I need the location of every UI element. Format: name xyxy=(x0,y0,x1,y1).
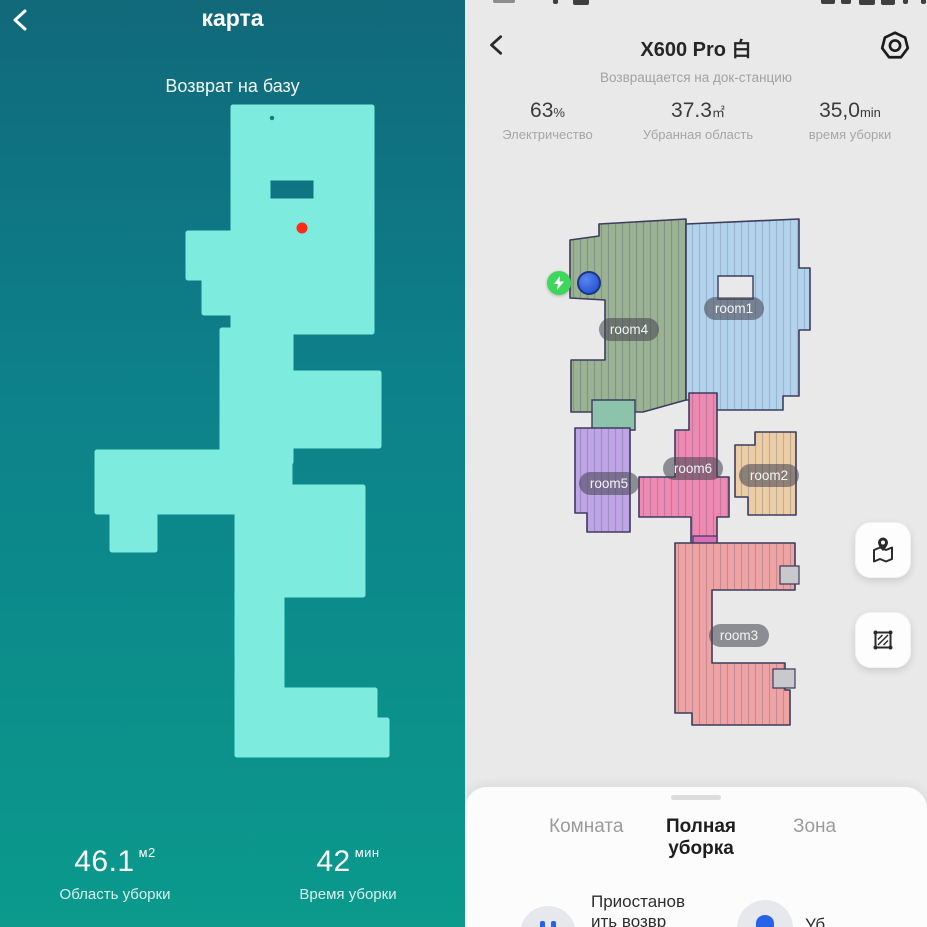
dock-action-button[interactable] xyxy=(737,900,793,927)
room-label-room3[interactable]: room3 xyxy=(709,624,769,647)
robot-marker xyxy=(577,271,601,295)
dock-icon xyxy=(752,912,778,927)
pause-icon xyxy=(540,921,545,927)
right-panel: X600 Pro 白 Возвращается на док-станцию 6… xyxy=(465,0,927,927)
zone-edit-button[interactable] xyxy=(855,612,911,668)
left-panel: карта Возврат на базу 46.1м2 Область убо… xyxy=(0,0,465,927)
charging-dock-marker xyxy=(547,271,571,295)
page-title: карта xyxy=(0,5,465,32)
left-header: карта xyxy=(0,0,465,44)
room-label-room5[interactable]: room5 xyxy=(579,472,639,495)
green-patch xyxy=(592,400,635,430)
dock-action-label: Уб xyxy=(805,915,825,927)
pause-return-button[interactable] xyxy=(520,906,576,927)
room-label-room4[interactable]: room4 xyxy=(599,318,659,341)
left-status-text: Возврат на базу xyxy=(0,76,465,97)
zone-icon xyxy=(869,626,897,654)
cleaning-map xyxy=(0,0,465,927)
room-label-room1[interactable]: room1 xyxy=(704,297,764,320)
stat-label: Область уборки xyxy=(25,886,205,903)
tab-zone[interactable]: Зона xyxy=(793,816,836,838)
room1-obstacle xyxy=(718,276,753,299)
tab-full-clean[interactable]: Полная уборка xyxy=(661,816,741,861)
pause-icon xyxy=(551,921,556,927)
stat-value: 42 xyxy=(316,845,350,878)
stat-unit: м2 xyxy=(139,845,156,860)
map-pin-icon xyxy=(869,536,897,564)
pause-return-label: Приостанов ить возвр xyxy=(591,892,693,927)
screen: карта Возврат на базу 46.1м2 Область убо… xyxy=(0,0,927,927)
robot-position-dot xyxy=(297,223,308,234)
map-speck xyxy=(270,116,274,120)
stat-clean-time: 42мин Время уборки xyxy=(258,845,438,903)
tab-room[interactable]: Комната xyxy=(549,816,623,838)
sheet-drag-handle[interactable] xyxy=(671,795,721,800)
bottom-sheet: Комната Полная уборка Зона Приостанов ит… xyxy=(465,787,927,927)
stat-label: Время уборки xyxy=(258,886,438,903)
room3-obstacle xyxy=(773,669,795,688)
room-label-room6[interactable]: room6 xyxy=(663,457,723,480)
stat-unit: мин xyxy=(355,845,380,860)
room4-mow-lines xyxy=(570,219,686,412)
stat-clean-area: 46.1м2 Область уборки xyxy=(25,845,205,903)
map-pin-button[interactable] xyxy=(855,522,911,578)
lightning-icon xyxy=(553,276,565,290)
stat-value: 46.1 xyxy=(74,845,134,878)
room-label-room2[interactable]: room2 xyxy=(739,464,799,487)
room3-obstacle xyxy=(780,566,799,584)
map-area-shape xyxy=(97,107,387,755)
